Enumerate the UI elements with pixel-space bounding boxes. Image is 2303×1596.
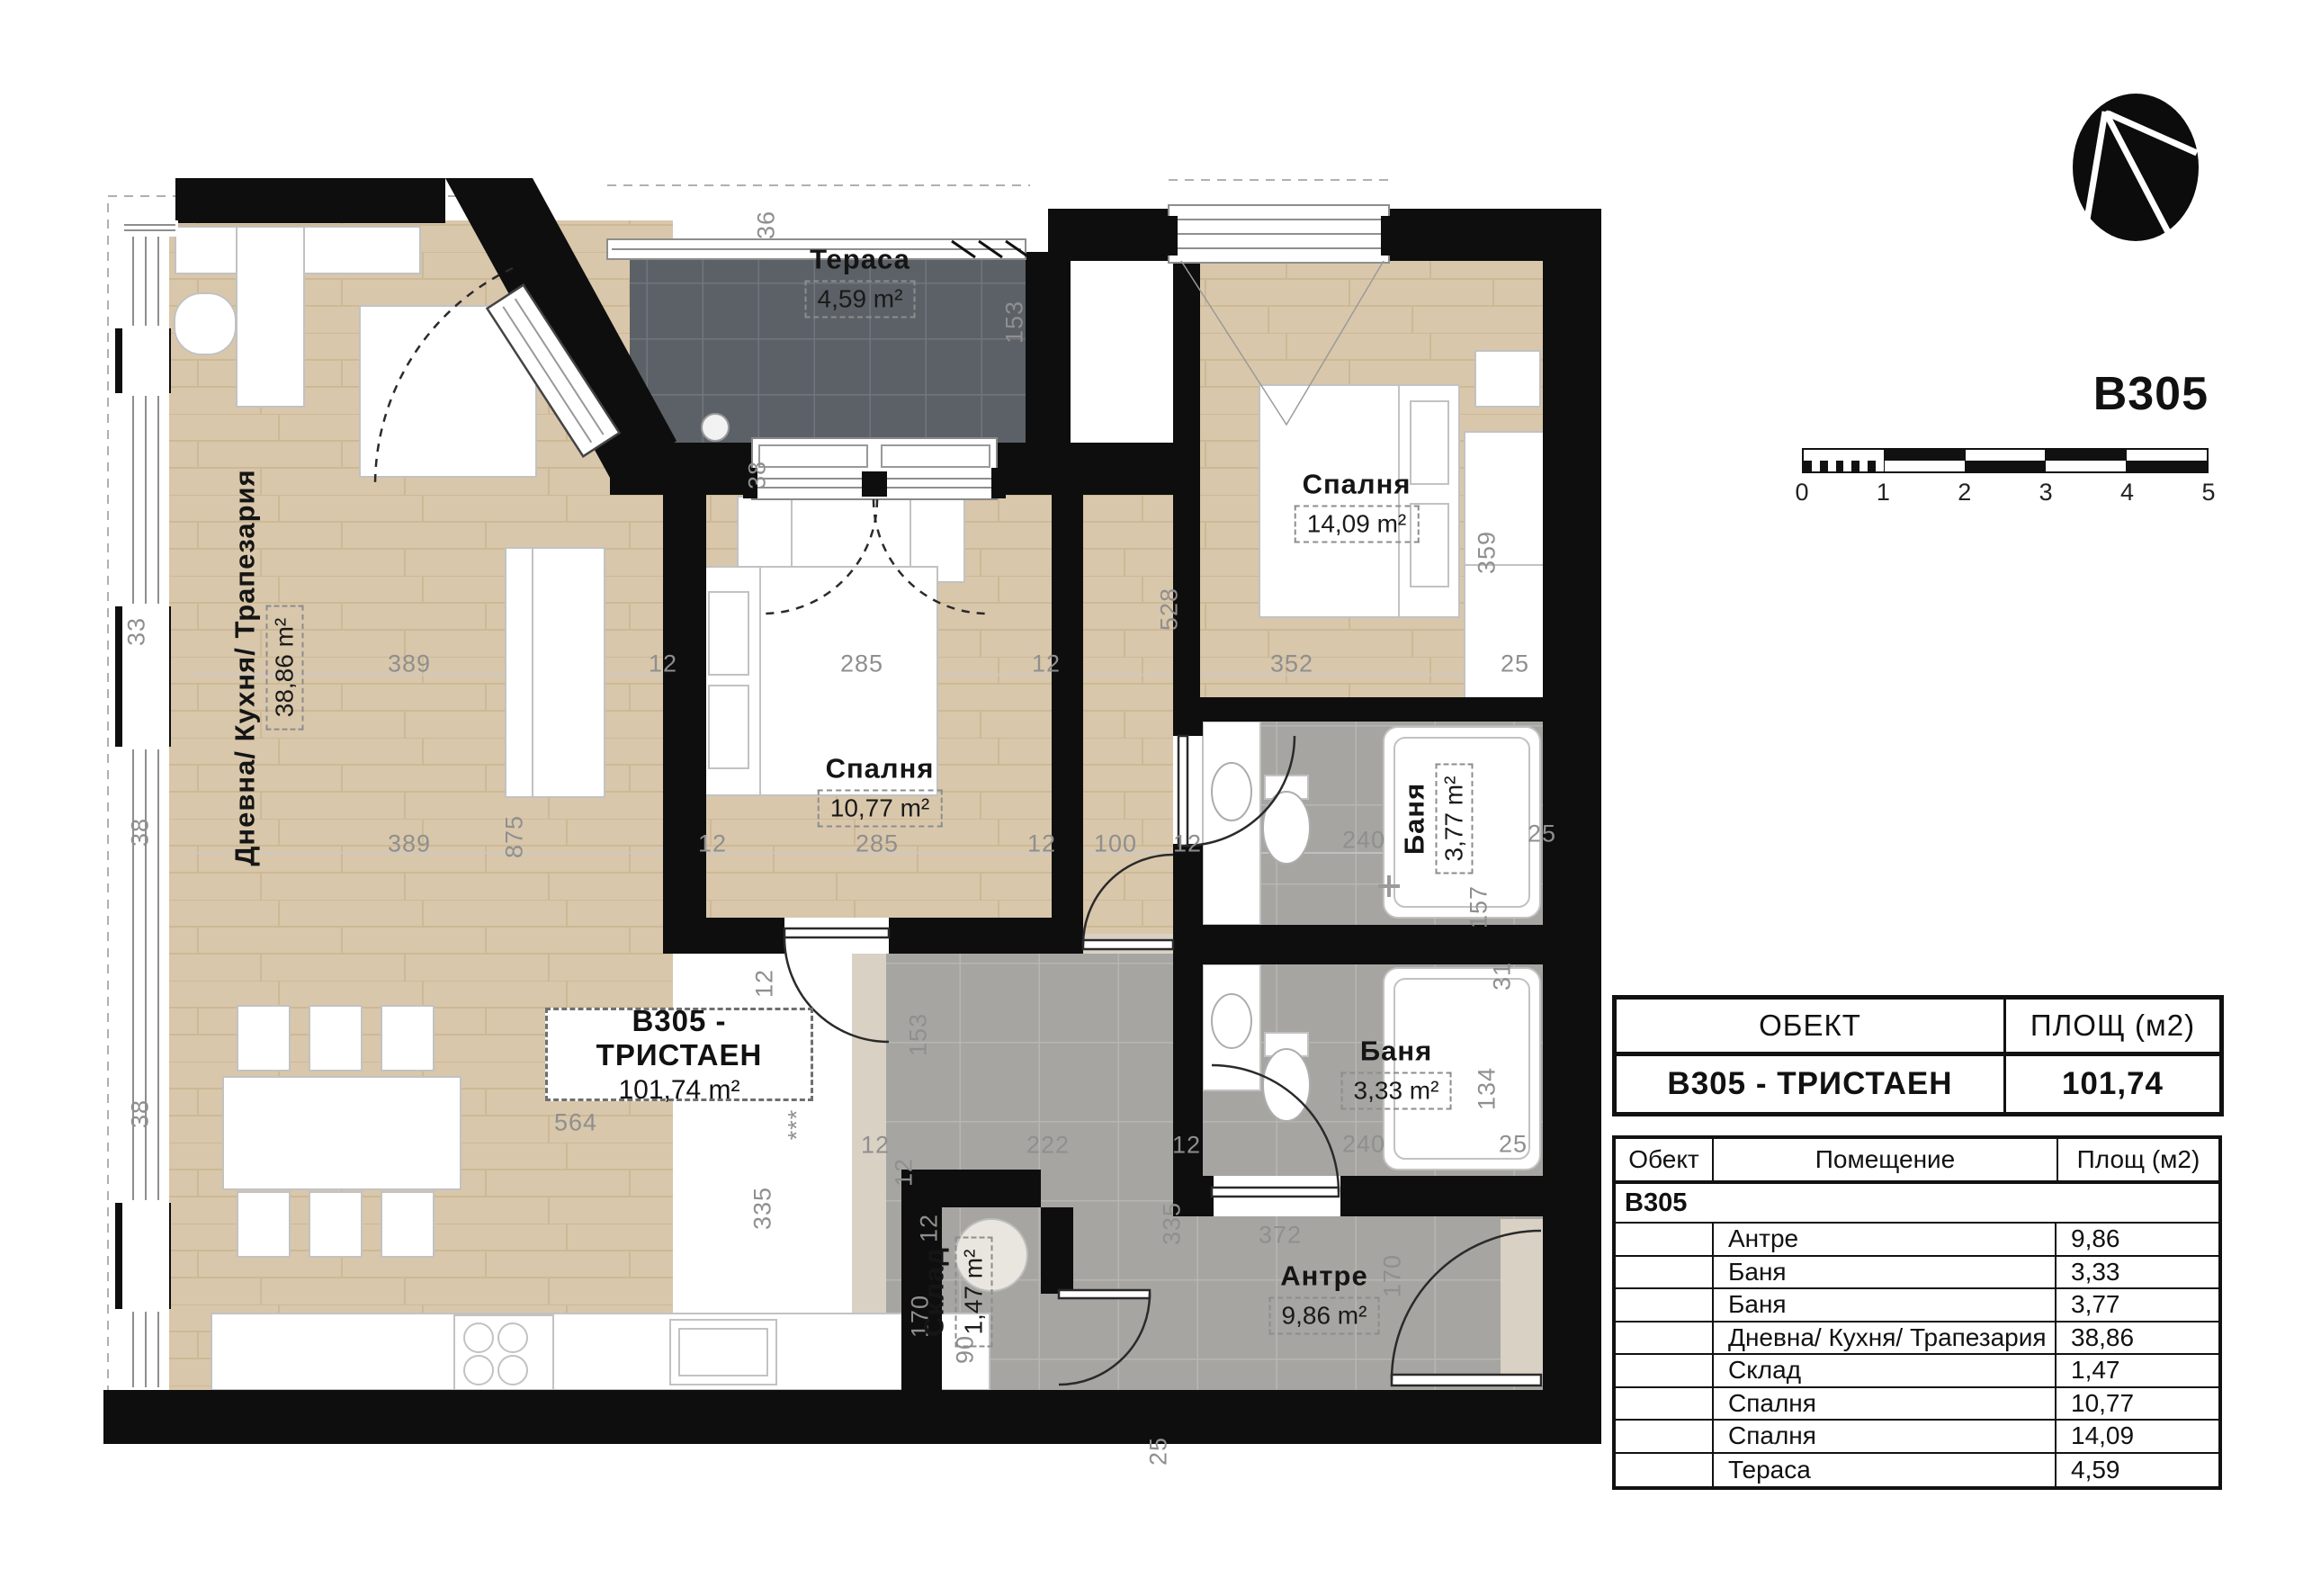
summary-area-value: 101,74 bbox=[2006, 1056, 2219, 1112]
room-area: 4,59 m² bbox=[805, 281, 916, 318]
row-area-cell: 3,77 bbox=[2057, 1289, 2218, 1321]
row-area-cell: 4,59 bbox=[2057, 1454, 2218, 1487]
rooms-table-row: Спалня 10,77 bbox=[1616, 1388, 2218, 1421]
dim-label: 12 bbox=[861, 1132, 890, 1160]
row-object-cell bbox=[1616, 1224, 1714, 1255]
unit-title: B305 - ТРИСТАЕН bbox=[548, 1004, 811, 1072]
dim-label: 12 bbox=[1027, 830, 1056, 858]
room-label: Спалня 10,77 m² bbox=[818, 753, 943, 828]
row-object-cell bbox=[1616, 1257, 1714, 1288]
row-room-cell: Спалня bbox=[1714, 1388, 2057, 1420]
dim-label: 31 bbox=[1489, 962, 1517, 991]
row-room-cell: Баня bbox=[1714, 1257, 2057, 1288]
dim-label: 12 bbox=[1173, 830, 1202, 858]
room-label: Склад 1,47 m² bbox=[919, 1237, 993, 1348]
dim-label: 359 bbox=[1474, 531, 1501, 574]
rooms-header-object: Обект bbox=[1616, 1139, 1714, 1180]
dim-label: 12 bbox=[891, 1158, 919, 1187]
row-object-cell bbox=[1616, 1355, 1714, 1386]
dim-label: 25 bbox=[1145, 1437, 1173, 1466]
dim-label: 38 bbox=[127, 1099, 155, 1128]
dim-label: 240 bbox=[1342, 1131, 1385, 1159]
dim-label: 285 bbox=[856, 830, 899, 858]
dim-label: 134 bbox=[1474, 1067, 1501, 1110]
row-object-cell bbox=[1616, 1421, 1714, 1452]
rooms-header-area: Площ (м2) bbox=[2058, 1139, 2218, 1180]
room-label: Баня 3,77 m² bbox=[1399, 764, 1474, 874]
room-name: Тераса bbox=[805, 244, 916, 276]
row-area-cell: 1,47 bbox=[2057, 1355, 2218, 1386]
dim-label: 564 bbox=[554, 1109, 597, 1137]
room-area: 38,86 m² bbox=[266, 605, 304, 731]
dim-label: 875 bbox=[501, 815, 529, 858]
summary-table: ОБЕКТ ПЛОЩ (м2) B305 - ТРИСТАЕН 101,74 bbox=[1612, 995, 2224, 1116]
dim-label: 12 bbox=[751, 969, 779, 998]
dim-label: 222 bbox=[1026, 1132, 1070, 1160]
room-area: 3,33 m² bbox=[1341, 1072, 1452, 1110]
dim-label: 100 bbox=[1094, 830, 1137, 858]
rooms-table-header: Обект Помещение Площ (м2) bbox=[1616, 1139, 2218, 1184]
rooms-table-row: Дневна/ Кухня/ Трапезария 38,86 bbox=[1616, 1323, 2218, 1356]
room-name: Баня bbox=[1399, 764, 1431, 874]
room-label: Тераса 4,59 m² bbox=[805, 244, 916, 318]
scale-bar: 012345 bbox=[1802, 448, 2209, 507]
row-room-cell: Спалня bbox=[1714, 1421, 2057, 1452]
scale-bar-segments bbox=[1802, 448, 2209, 473]
room-name: Баня bbox=[1341, 1036, 1452, 1068]
room-name: Склад bbox=[919, 1237, 951, 1348]
summary-table-row: B305 - ТРИСТАЕН 101,74 bbox=[1617, 1056, 2219, 1112]
room-name: Спалня bbox=[1295, 469, 1420, 501]
row-room-cell: Тераса bbox=[1714, 1454, 2057, 1487]
rooms-header-room: Помещение bbox=[1714, 1139, 2058, 1180]
floorplan-sheet: 3891228512352255283615335938389875122851… bbox=[0, 0, 2303, 1596]
brand-logo bbox=[2066, 86, 2206, 248]
rooms-table-rows: Антре 9,86 Баня 3,33 Баня 3,77 Дневна/ К… bbox=[1616, 1224, 2218, 1486]
row-room-cell: Баня bbox=[1714, 1289, 2057, 1321]
scale-bar-checker bbox=[1804, 461, 1884, 471]
row-object-cell bbox=[1616, 1454, 1714, 1487]
dim-label: 335 bbox=[749, 1187, 777, 1230]
scale-bar-ticks: 012345 bbox=[1802, 479, 2209, 507]
room-label: Спалня 14,09 m² bbox=[1295, 469, 1420, 543]
dim-label: *** bbox=[784, 1109, 811, 1141]
dim-label: 12 bbox=[1172, 1132, 1201, 1160]
room-label: Баня 3,33 m² bbox=[1341, 1036, 1452, 1110]
room-area: 10,77 m² bbox=[818, 790, 943, 828]
summary-header-object: ОБЕКТ bbox=[1617, 1000, 2006, 1052]
rooms-table-row: Склад 1,47 bbox=[1616, 1355, 2218, 1388]
room-area: 14,09 m² bbox=[1295, 506, 1420, 543]
row-area-cell: 14,09 bbox=[2057, 1421, 2218, 1452]
row-area-cell: 10,77 bbox=[2057, 1388, 2218, 1420]
row-area-cell: 38,86 bbox=[2057, 1323, 2218, 1354]
dim-label: 12 bbox=[698, 830, 727, 858]
rooms-table-row: Баня 3,33 bbox=[1616, 1257, 2218, 1290]
summary-object-value: B305 - ТРИСТАЕН bbox=[1617, 1056, 2006, 1112]
dim-label: 528 bbox=[1156, 587, 1184, 631]
row-area-cell: 9,86 bbox=[2057, 1224, 2218, 1255]
room-name: Дневна/ Кухня/ Трапезария bbox=[229, 469, 262, 865]
dim-label: 12 bbox=[1032, 650, 1061, 678]
unit-code-title: B305 bbox=[1943, 367, 2209, 421]
room-name: Антре bbox=[1269, 1260, 1380, 1293]
room-label: Дневна/ Кухня/ Трапезария 38,86 m² bbox=[229, 469, 304, 865]
dim-label: 33 bbox=[123, 617, 151, 646]
dim-label: 25 bbox=[1528, 820, 1556, 848]
dim-label: 153 bbox=[1001, 300, 1029, 344]
dim-label: 157 bbox=[1465, 885, 1493, 928]
rooms-table-row: Баня 3,77 bbox=[1616, 1289, 2218, 1323]
row-room-cell: Антре bbox=[1714, 1224, 2057, 1255]
room-area: 1,47 m² bbox=[955, 1237, 993, 1348]
row-object-cell bbox=[1616, 1388, 1714, 1420]
room-label: Антре 9,86 m² bbox=[1269, 1260, 1380, 1335]
row-area-cell: 3,33 bbox=[2057, 1257, 2218, 1288]
dim-label: 38 bbox=[127, 818, 155, 847]
row-room-cell: Дневна/ Кухня/ Трапезария bbox=[1714, 1323, 2057, 1354]
dim-label: 240 bbox=[1342, 827, 1385, 855]
dim-label: 285 bbox=[840, 650, 883, 678]
dim-label: 389 bbox=[388, 650, 431, 678]
dim-label: 170 bbox=[1379, 1254, 1407, 1297]
rooms-table: Обект Помещение Площ (м2) B305 Антре 9,8… bbox=[1612, 1135, 2222, 1490]
floor-plan: 3891228512352255283615335938389875122851… bbox=[90, 171, 1619, 1489]
dim-label: 38 bbox=[744, 461, 772, 489]
dim-label: 25 bbox=[1501, 650, 1529, 678]
dim-label: 25 bbox=[1499, 1131, 1528, 1159]
row-object-cell bbox=[1616, 1323, 1714, 1354]
rooms-table-row: Антре 9,86 bbox=[1616, 1224, 2218, 1257]
dim-label: 36 bbox=[753, 211, 781, 239]
row-room-cell: Склад bbox=[1714, 1355, 2057, 1386]
room-area: 9,86 m² bbox=[1269, 1297, 1380, 1335]
unit-area-value: 101,74 m² bbox=[618, 1075, 739, 1106]
room-name: Спалня bbox=[818, 753, 943, 785]
dim-label: 153 bbox=[905, 1013, 933, 1056]
dim-label: 372 bbox=[1259, 1222, 1302, 1250]
summary-header-area: ПЛОЩ (м2) bbox=[2006, 1000, 2219, 1052]
rooms-table-group: B305 bbox=[1616, 1184, 2218, 1224]
room-area: 3,77 m² bbox=[1436, 764, 1474, 874]
unit-label: B305 - ТРИСТАЕН 101,74 m² bbox=[545, 1008, 813, 1101]
summary-table-header: ОБЕКТ ПЛОЩ (м2) bbox=[1617, 1000, 2219, 1056]
rooms-table-row: Спалня 14,09 bbox=[1616, 1421, 2218, 1454]
row-object-cell bbox=[1616, 1289, 1714, 1321]
dim-label: 352 bbox=[1270, 650, 1313, 678]
dim-label: 12 bbox=[649, 650, 677, 678]
dim-label: 389 bbox=[388, 830, 431, 858]
dim-label: 335 bbox=[1159, 1202, 1187, 1245]
rooms-table-row: Тераса 4,59 bbox=[1616, 1454, 2218, 1487]
